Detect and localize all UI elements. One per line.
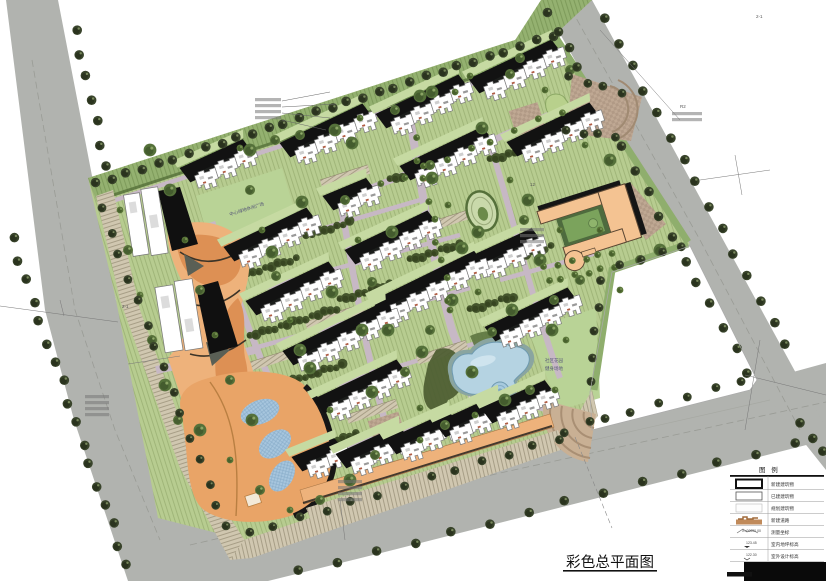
svg-text:X=00000.00: X=00000.00 [742,529,761,533]
svg-text:规划建筑物: 规划建筑物 [771,505,794,512]
svg-text:R2: R2 [680,104,686,109]
svg-text:新建道路: 新建道路 [771,517,790,524]
svg-text:室内地坪标高: 室内地坪标高 [771,541,799,548]
svg-text:已建建筑物: 已建建筑物 [771,493,794,500]
svg-text:彩色总平面图: 彩色总平面图 [566,554,654,571]
svg-text:122.30: 122.30 [746,553,757,557]
svg-text:12: 12 [530,182,536,187]
svg-text:2-1: 2-1 [756,14,763,19]
svg-text:测量坐标: 测量坐标 [771,529,790,536]
svg-text:2-1: 2-1 [122,304,129,309]
svg-text:新建建筑物: 新建建筑物 [771,481,794,488]
svg-text:室外设计标高: 室外设计标高 [771,553,799,560]
svg-text:社区花园: 社区花园 [545,357,563,364]
svg-text:健身场地: 健身场地 [545,365,563,372]
svg-text:123.45: 123.45 [746,541,757,545]
